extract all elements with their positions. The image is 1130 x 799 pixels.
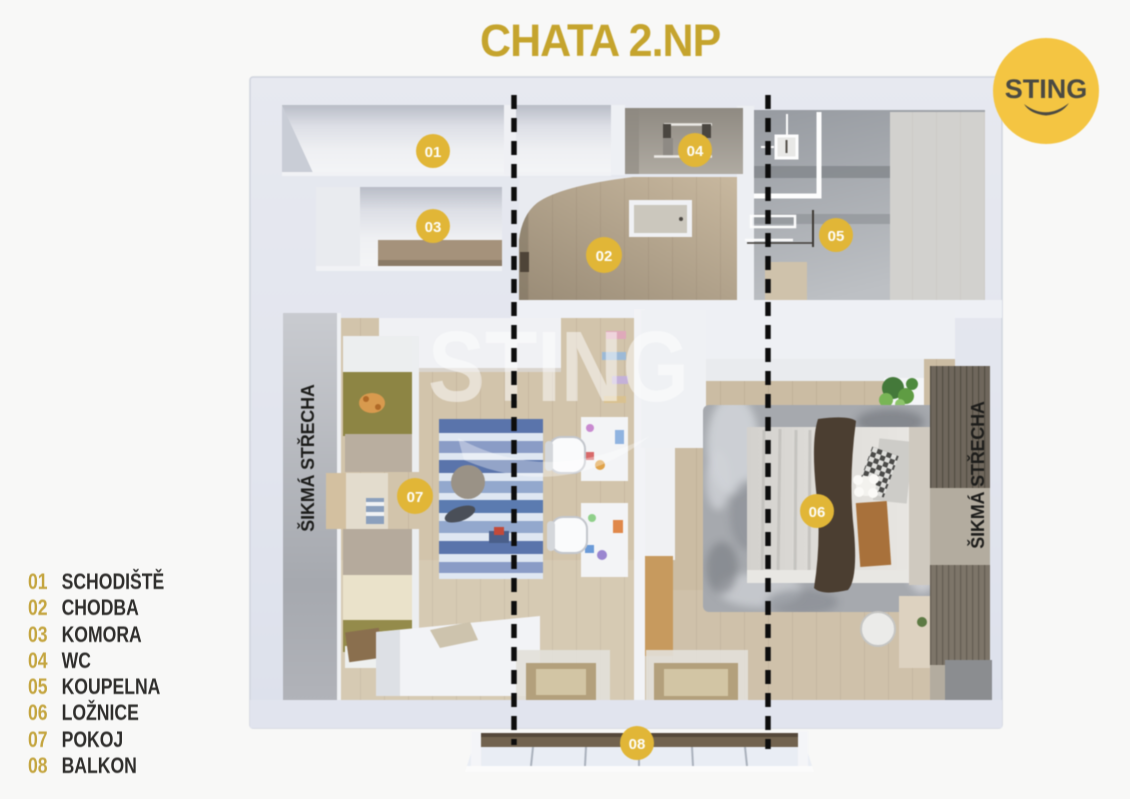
svg-text:06: 06 [809,504,826,521]
svg-text:03: 03 [425,219,442,236]
svg-text:04: 04 [687,143,704,160]
svg-text:05: 05 [828,228,845,245]
svg-text:STING: STING [428,311,689,423]
svg-text:08: 08 [629,736,646,753]
svg-text:STING: STING [1005,74,1088,104]
svg-text:07: 07 [407,489,424,506]
svg-text:01: 01 [425,144,442,161]
svg-text:ŠIKMÁ STŘECHA: ŠIKMÁ STŘECHA [967,401,988,549]
svg-text:ŠIKMÁ STŘECHA: ŠIKMÁ STŘECHA [297,384,318,532]
svg-text:02: 02 [596,248,613,265]
